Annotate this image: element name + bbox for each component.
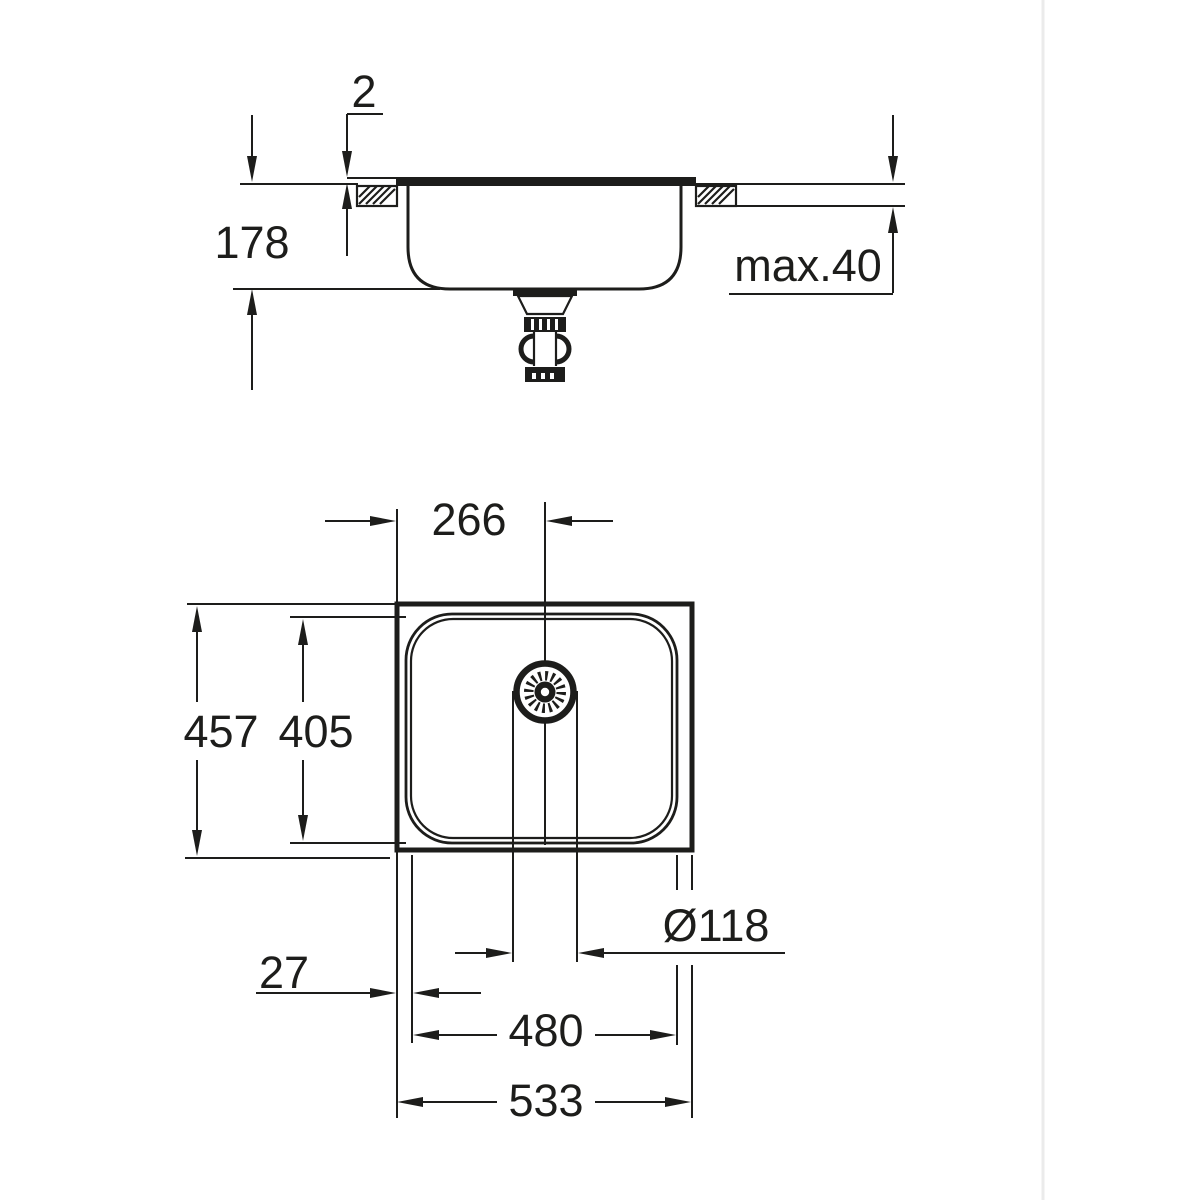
dim-counter-thickness: max.40 (729, 115, 898, 294)
arrow-up-icon (247, 289, 257, 315)
dim-drain-from-left-label: 266 (431, 494, 506, 545)
arrow-left-icon (413, 1030, 439, 1040)
sink-rim-bar (396, 177, 696, 186)
dim-overall-width-label: 533 (508, 1075, 583, 1126)
countertop-hatch-right (696, 186, 736, 206)
dim-depth: 178 (214, 115, 289, 390)
drain-strainer (517, 664, 574, 721)
extension-lines (185, 502, 692, 1118)
arrow-right-icon (665, 1097, 691, 1107)
drain-nut-upper (524, 317, 566, 332)
arrow-down-icon (192, 830, 202, 856)
dim-bowl-depth-label: 405 (278, 706, 353, 757)
arrow-left-icon (578, 948, 604, 958)
arrow-down-icon (888, 156, 898, 182)
plan-view: 266 457 405 Ø118 (183, 494, 785, 1126)
side-view: 2 178 max.40 (214, 66, 905, 390)
sink-technical-drawing: 2 178 max.40 (0, 0, 1200, 1200)
dim-rim-height-label: 2 (351, 66, 376, 117)
arrow-up-icon (192, 606, 202, 632)
dim-overall-width: 533 (397, 1075, 691, 1126)
arrow-up-icon (298, 619, 308, 645)
dim-overall-depth: 457 (183, 606, 258, 856)
dim-rim-height: 2 (342, 66, 383, 256)
dim-bowl-width: 480 (413, 1005, 676, 1056)
bowl-outline-inner (411, 619, 672, 838)
trap-union-left (521, 336, 534, 362)
dim-drain-diameter-label: Ø118 (663, 900, 770, 951)
dim-drain-from-left: 266 (325, 494, 613, 545)
dim-drain-diameter: Ø118 (455, 900, 785, 958)
arrow-right-icon (650, 1030, 676, 1040)
arrow-down-icon (342, 151, 352, 177)
drawing-canvas: 2 178 max.40 (0, 0, 1200, 1200)
dim-edge-to-bowl-label: 27 (259, 947, 309, 998)
dim-depth-label: 178 (214, 217, 289, 268)
dim-overall-depth-label: 457 (183, 706, 258, 757)
drain-center-hole (541, 688, 549, 696)
arrow-right-icon (370, 988, 396, 998)
arrow-up-icon (888, 207, 898, 233)
dim-counter-thickness-label: max.40 (734, 240, 882, 291)
arrow-left-icon (397, 1097, 423, 1107)
dim-edge-to-bowl: 27 (256, 947, 481, 998)
arrow-right-icon (370, 516, 396, 526)
bowl-outline-outer (406, 614, 677, 843)
arrow-up-icon (342, 183, 352, 209)
bowl-profile (408, 186, 681, 289)
drain-flange (513, 288, 577, 296)
arrow-right-icon (486, 948, 512, 958)
arrow-down-icon (247, 156, 257, 182)
countertop-hatch-left (357, 186, 397, 206)
trap-union-right (556, 336, 569, 362)
arrow-left-icon (413, 988, 439, 998)
dim-bowl-width-label: 480 (508, 1005, 583, 1056)
dim-bowl-depth: 405 (278, 619, 353, 841)
drain-tailpiece (518, 296, 572, 314)
drain-trap (513, 288, 577, 382)
arrow-left-icon (546, 516, 572, 526)
arrow-down-icon (298, 815, 308, 841)
